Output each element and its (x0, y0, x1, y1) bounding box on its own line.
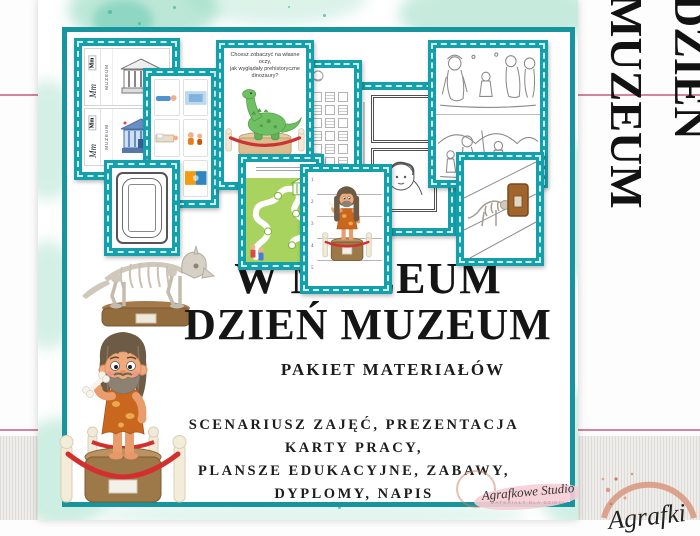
page: { "side_banner": { "vertical_text": "DZI… (0, 0, 700, 520)
speckle-dot (173, 6, 176, 9)
green-dinosaur-illustration (224, 82, 306, 164)
strip-number: 3 (311, 222, 314, 227)
letters-print: Mm (88, 115, 96, 130)
mini-caveman-illustration (322, 176, 374, 282)
watermark-tagline: MATERIAŁY DLA DZIECI (468, 500, 578, 505)
picture-tile (154, 79, 180, 116)
word-muzeum: MUZEUM (104, 124, 109, 150)
cavemen-coloring-scene-1 (436, 48, 540, 114)
studio-watermark: Agrafkowe Studio MATERIAŁY DLA DZIECI (468, 478, 578, 518)
watercolor-blob (188, 0, 368, 25)
caveman-illustration (58, 330, 188, 510)
drawn-frame-inner (128, 184, 156, 232)
description-line: KARTY PRACY, (138, 437, 570, 460)
strip-number: 1 (311, 178, 314, 183)
description-line: SCENARIUSZ ZAJĘĆ, PREZENTACJA (138, 414, 570, 437)
skeleton-puzzle-illustration (464, 160, 536, 258)
thumbnail-skeleton-puzzle (456, 152, 544, 266)
subtitle: PAKIET MATERIAŁÓW (198, 360, 578, 380)
dino-question-text: Chcesz zobaczyć na własne oczy, jak wygl… (224, 48, 306, 82)
picture-tile (183, 119, 209, 156)
strip-number: 5 (311, 266, 314, 271)
strip-number: 4 (311, 244, 314, 249)
letters-cursive: Mm (88, 84, 98, 98)
speckle-dot (108, 10, 112, 14)
sideways-caption-bar (363, 102, 365, 172)
vertical-banner-text: DZIEŃ MUZEUM (594, 0, 700, 324)
thumbnail-drawn-frame (104, 160, 180, 256)
letters-cursive: Mm (88, 144, 98, 158)
picture-tile (154, 119, 180, 156)
picture-tile (183, 79, 209, 116)
speckle-dot (323, 14, 326, 17)
speckle-dot (138, 22, 141, 25)
picture-tile (183, 160, 209, 197)
thumbnail-strips-puzzle: 1 2 3 4 5 (300, 164, 392, 294)
promo-pin-image: Mm Mm MUZEUM Mm Mm MU (38, 0, 578, 520)
letters-print: Mm (88, 55, 96, 70)
speckle-dot (288, 6, 290, 8)
word-muzeum: MUZEUM (104, 64, 109, 90)
strip-number: 2 (311, 200, 314, 205)
